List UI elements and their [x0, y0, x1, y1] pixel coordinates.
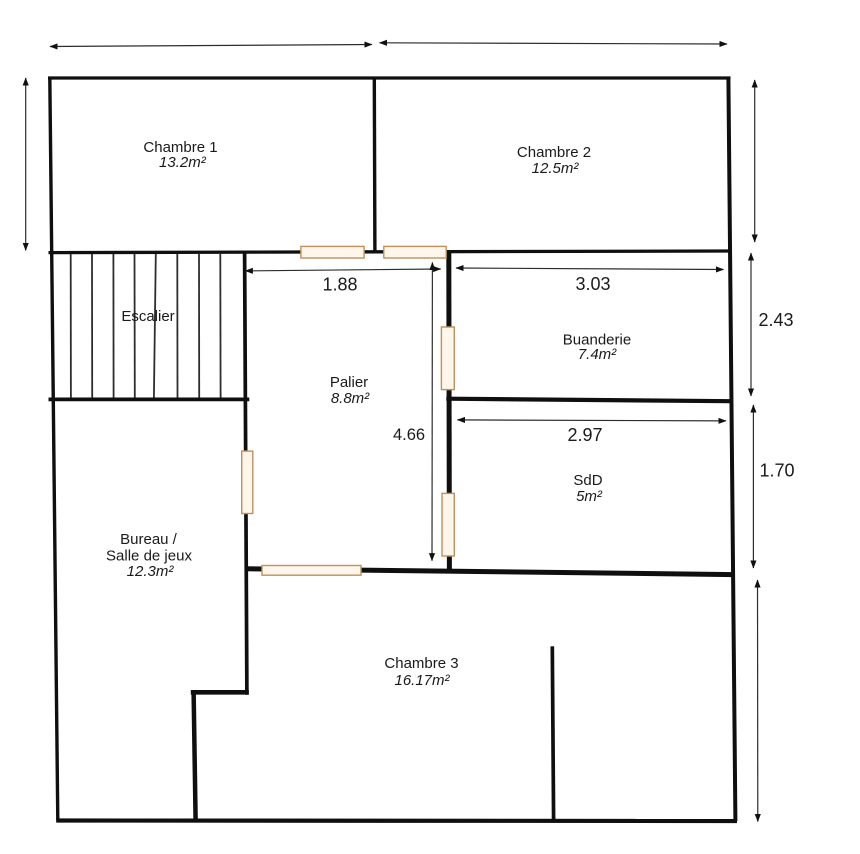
svg-text:Chambre 2: Chambre 2	[517, 144, 591, 161]
svg-text:5m²: 5m²	[576, 488, 603, 505]
svg-text:4.66: 4.66	[393, 426, 425, 444]
svg-text:12.5m²: 12.5m²	[532, 160, 580, 177]
svg-text:12.3m²: 12.3m²	[127, 563, 175, 580]
svg-text:SdD: SdD	[573, 472, 602, 489]
svg-text:Bureau /: Bureau /	[120, 531, 178, 548]
svg-text:8.8m²: 8.8m²	[331, 390, 370, 407]
svg-text:Salle de jeux: Salle de jeux	[106, 548, 192, 565]
svg-text:Escalier: Escalier	[121, 308, 174, 325]
svg-text:1.88: 1.88	[322, 275, 357, 295]
svg-text:1.70: 1.70	[759, 461, 794, 481]
svg-text:Palier: Palier	[330, 374, 368, 391]
svg-text:16.17m²: 16.17m²	[394, 672, 450, 689]
svg-text:7.4m²: 7.4m²	[578, 346, 617, 363]
svg-text:Chambre 3: Chambre 3	[384, 655, 458, 672]
svg-text:2.97: 2.97	[567, 425, 602, 445]
svg-text:2.43: 2.43	[758, 310, 793, 330]
svg-text:3.03: 3.03	[575, 274, 610, 294]
svg-text:13.2m²: 13.2m²	[159, 154, 207, 171]
